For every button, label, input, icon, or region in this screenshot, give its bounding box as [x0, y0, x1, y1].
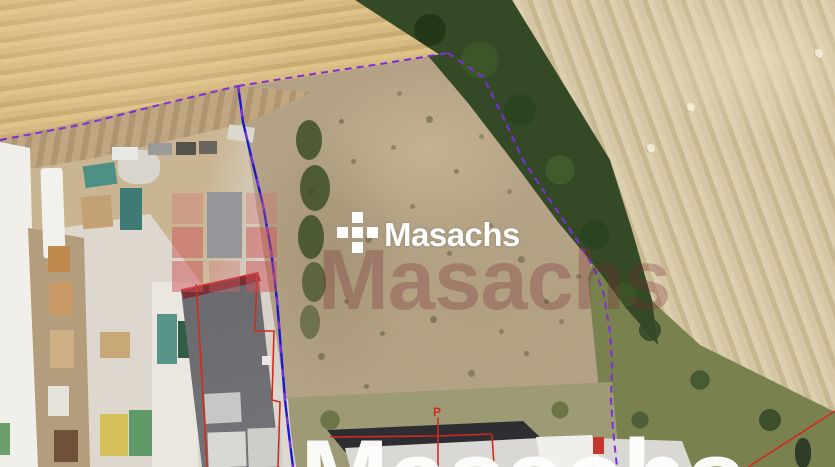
red-boundary-west: [196, 284, 207, 467]
logo-square: [352, 242, 363, 253]
logo-square: [172, 193, 203, 224]
brand-logo-text: Masachs: [384, 216, 520, 254]
logo-square: [246, 193, 277, 224]
logo-square: [246, 261, 277, 292]
red-boundary-southeast: [748, 411, 835, 467]
bottom-watermark-text: Masachs: [300, 424, 745, 467]
logo-square: [209, 261, 240, 292]
logo-square: [172, 227, 203, 258]
logo-square: [352, 227, 363, 238]
logo-square: [337, 227, 348, 238]
logo-square: [367, 227, 378, 238]
purple-boundary-north: [238, 53, 448, 86]
logo-square: [246, 227, 277, 258]
purple-boundary-west: [0, 86, 238, 140]
logo-square: [172, 261, 203, 292]
logo-square: [352, 212, 363, 223]
aerial-parcel-photo: P Masachs Masachs Masachs: [0, 0, 835, 467]
